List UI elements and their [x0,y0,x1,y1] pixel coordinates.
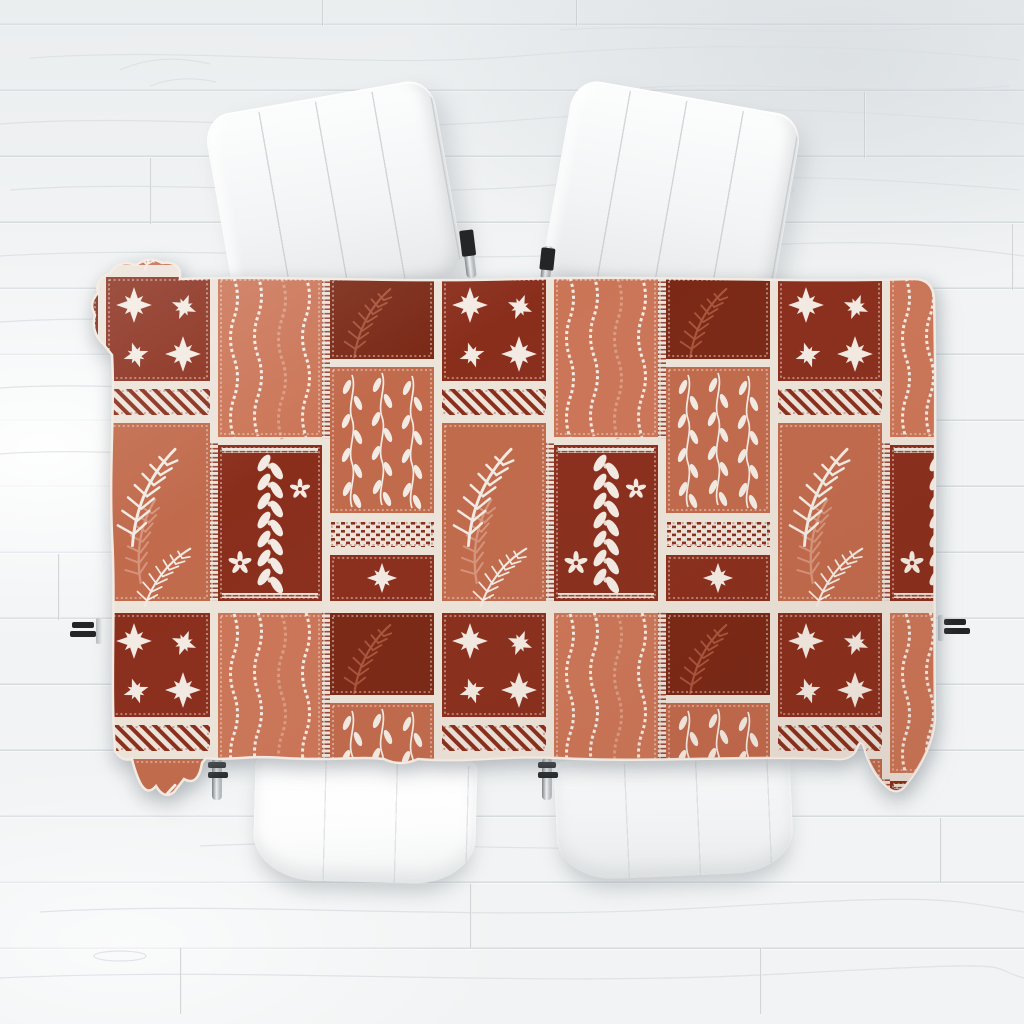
plank-seam [940,818,942,882]
plank-seam [58,554,60,620]
plank-seam [470,884,472,948]
chair-leg-black-fitting [459,229,476,257]
plank-seam [322,0,324,26]
product-mockup-scene [0,0,1024,1024]
plank-seam [180,948,182,1014]
plank-seam [864,92,866,158]
tablecloth-fold-sheen [92,259,935,794]
plank-seam [576,0,578,26]
plank-seam [760,948,762,1014]
plank-seam [1012,224,1014,290]
tablecloth [88,255,948,810]
plank-seam [150,158,152,224]
